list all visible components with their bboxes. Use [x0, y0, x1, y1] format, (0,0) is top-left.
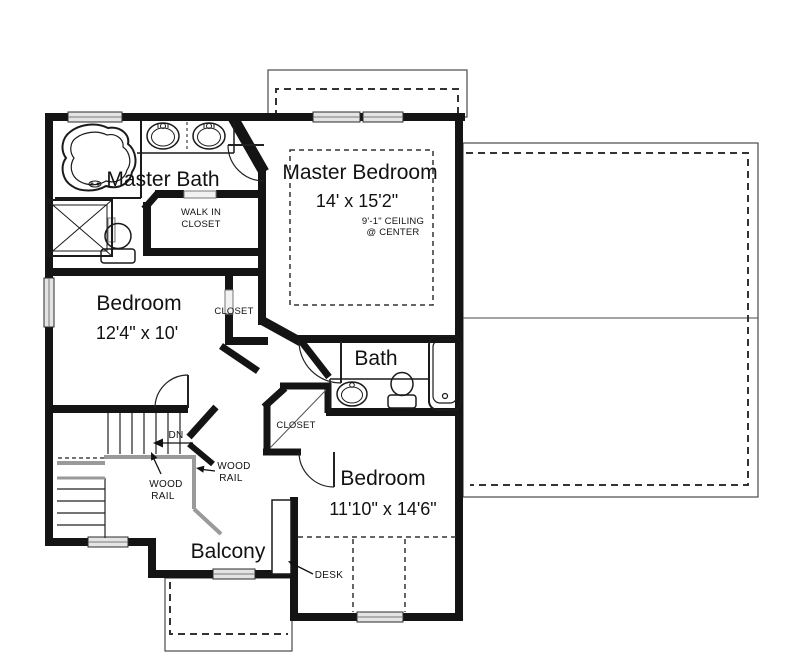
double-vanity-icon — [137, 121, 234, 153]
label-desk: DESK — [315, 570, 343, 581]
floor-plan-page: Master Bath WALK IN CLOSET Master Bedroo… — [0, 0, 801, 664]
wood-rail-2-arrow — [196, 466, 215, 473]
wall-bath-west-diagonal — [301, 341, 329, 377]
shower-icon — [47, 200, 112, 256]
sink-icon-3 — [337, 382, 367, 406]
window-bottom-left — [88, 537, 128, 547]
label-closet-hall: CLOSET — [214, 306, 253, 317]
label-walkin-2: CLOSET — [181, 219, 220, 230]
label-bedroom-lower-dim: 11'10" x 14'6" — [329, 499, 436, 519]
wall-hall-zigzag — [221, 346, 258, 371]
door-bedroom-left — [155, 375, 188, 408]
label-dn: DN — [168, 430, 183, 441]
sink-icon-2 — [193, 123, 225, 149]
roof-right-dashed — [466, 153, 748, 485]
toilet-icon-bath — [388, 373, 416, 409]
label-master-bedroom-dim: 14' x 15'2" — [316, 191, 398, 211]
wall-stair-funnel-a — [189, 407, 216, 437]
label-wood-rail-2b: RAIL — [219, 473, 243, 484]
roof-top-bumpout — [268, 70, 467, 117]
window-master-bedroom-1 — [313, 112, 360, 122]
door-bedroom-lower — [299, 452, 334, 487]
label-bedroom-left: Bedroom — [96, 292, 181, 315]
label-bedroom-left-dim: 12'4" x 10' — [96, 323, 178, 343]
floor-plan-drawing: Master Bath WALK IN CLOSET Master Bedroo… — [0, 0, 801, 664]
window-balcony — [213, 569, 255, 579]
rail-diagonal — [194, 509, 221, 534]
roof-bottom-bumpout — [165, 578, 292, 651]
stairs — [57, 413, 180, 538]
label-wood-rail-1b: RAIL — [151, 491, 175, 502]
window-bedroom-left — [44, 278, 54, 327]
window-master-bedroom-2 — [363, 112, 403, 122]
stair-treads-lower — [57, 478, 105, 538]
label-balcony: Balcony — [191, 540, 266, 563]
walkin-closet-opening — [184, 191, 216, 198]
label-master-bath: Master Bath — [106, 168, 219, 191]
label-bedroom-lower: Bedroom — [340, 467, 425, 490]
label-bath: Bath — [354, 347, 397, 370]
label-closet-lower: CLOSET — [276, 420, 315, 431]
window-master-bath — [68, 112, 122, 122]
label-master-bedroom: Master Bedroom — [282, 161, 437, 184]
label-walkin-1: WALK IN — [181, 207, 221, 218]
window-bedroom-lower — [357, 612, 403, 622]
label-wood-rail-1a: WOOD — [149, 479, 182, 490]
toilet-icon-master — [101, 224, 135, 264]
wall-master-corner-chamfer — [263, 321, 301, 342]
label-ceiling-1: 9'-1" CEILING — [362, 216, 424, 227]
label-wood-rail-2a: WOOD — [217, 461, 250, 472]
roof-right — [463, 143, 758, 497]
sink-icon-1 — [147, 123, 179, 149]
railings — [57, 457, 221, 534]
desk — [272, 500, 291, 574]
closet-rod-line — [270, 390, 326, 448]
roof-bottom-dashed — [170, 582, 288, 634]
label-ceiling-2: @ CENTER — [367, 227, 420, 238]
